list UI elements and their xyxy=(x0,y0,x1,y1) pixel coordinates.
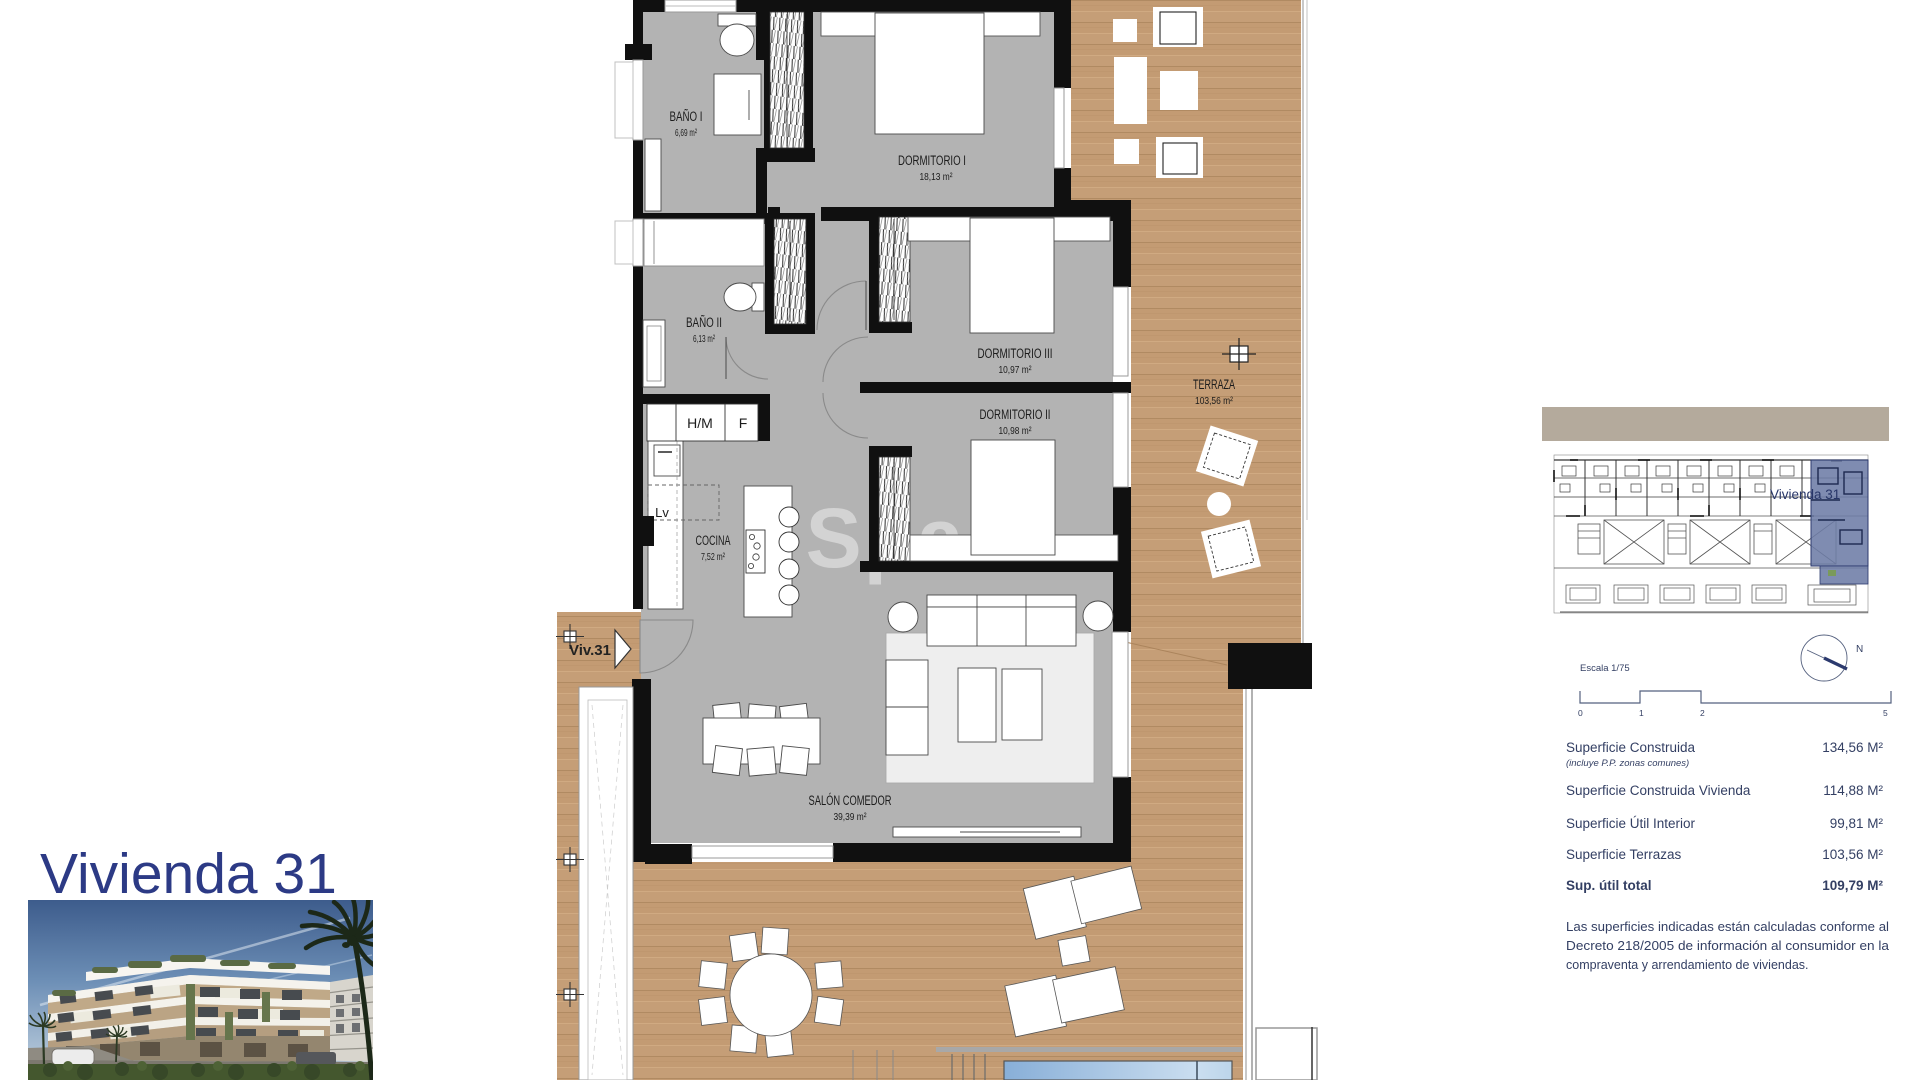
svg-text:18,13 m²: 18,13 m² xyxy=(920,171,953,183)
svg-text:Lv: Lv xyxy=(655,505,669,520)
svg-text:Viv.31: Viv.31 xyxy=(569,642,611,659)
svg-text:Escala 1/75: Escala 1/75 xyxy=(1580,663,1630,674)
svg-text:10,97 m²: 10,97 m² xyxy=(999,364,1032,376)
svg-text:Decreto 218/2005 de informació: Decreto 218/2005 de información al consu… xyxy=(1566,939,1889,953)
svg-text:SALÓN COMEDOR: SALÓN COMEDOR xyxy=(809,793,892,808)
svg-text:N: N xyxy=(1856,644,1863,655)
svg-text:Las superficies indicadas está: Las superficies indicadas están calculad… xyxy=(1566,920,1889,934)
svg-text:109,79 M²: 109,79 M² xyxy=(1822,878,1883,893)
svg-text:5: 5 xyxy=(1883,708,1888,718)
svg-text:Superficie Construida Vivienda: Superficie Construida Vivienda xyxy=(1566,783,1751,798)
svg-text:6,13 m²: 6,13 m² xyxy=(693,333,715,345)
svg-text:Vivienda 31: Vivienda 31 xyxy=(1770,487,1840,502)
svg-text:Superficie Terrazas: Superficie Terrazas xyxy=(1566,847,1682,862)
svg-text:Superficie Construida: Superficie Construida xyxy=(1566,740,1696,755)
svg-text:BAÑO I: BAÑO I xyxy=(670,109,703,124)
svg-text:2: 2 xyxy=(1700,708,1705,718)
svg-text:DORMITORIO I: DORMITORIO I xyxy=(898,153,966,168)
svg-text:COCINA: COCINA xyxy=(696,533,731,548)
svg-text:103,56 M²: 103,56 M² xyxy=(1822,847,1883,862)
svg-text:compraventa y arrendamiento de: compraventa y arrendamiento de viviendas… xyxy=(1566,958,1809,972)
svg-text:114,88 M²: 114,88 M² xyxy=(1823,783,1883,798)
svg-text:99,81 M²: 99,81 M² xyxy=(1830,816,1884,831)
svg-text:1: 1 xyxy=(1639,708,1644,718)
svg-text:(incluye P.P. zonas comunes): (incluye P.P. zonas comunes) xyxy=(1566,758,1689,769)
svg-text:DORMITORIO II: DORMITORIO II xyxy=(980,407,1051,422)
svg-text:F: F xyxy=(739,415,748,431)
svg-text:Sup. útil total: Sup. útil total xyxy=(1566,878,1652,893)
svg-text:BAÑO II: BAÑO II xyxy=(686,315,722,330)
svg-text:7,52 m²: 7,52 m² xyxy=(701,551,725,563)
svg-text:Vivienda 31: Vivienda 31 xyxy=(40,842,337,906)
svg-text:39,39 m²: 39,39 m² xyxy=(834,811,867,823)
svg-text:TERRAZA: TERRAZA xyxy=(1193,377,1235,392)
svg-text:10,98 m²: 10,98 m² xyxy=(999,425,1032,437)
svg-text:0: 0 xyxy=(1578,708,1583,718)
svg-text:Superficie Útil Interior: Superficie Útil Interior xyxy=(1566,816,1696,831)
svg-text:H/M: H/M xyxy=(687,415,713,431)
svg-text:DORMITORIO III: DORMITORIO III xyxy=(978,346,1053,361)
svg-text:6,69 m²: 6,69 m² xyxy=(675,127,697,139)
svg-text:134,56 M²: 134,56 M² xyxy=(1822,740,1883,755)
svg-text:103,56 m²: 103,56 m² xyxy=(1195,395,1233,407)
